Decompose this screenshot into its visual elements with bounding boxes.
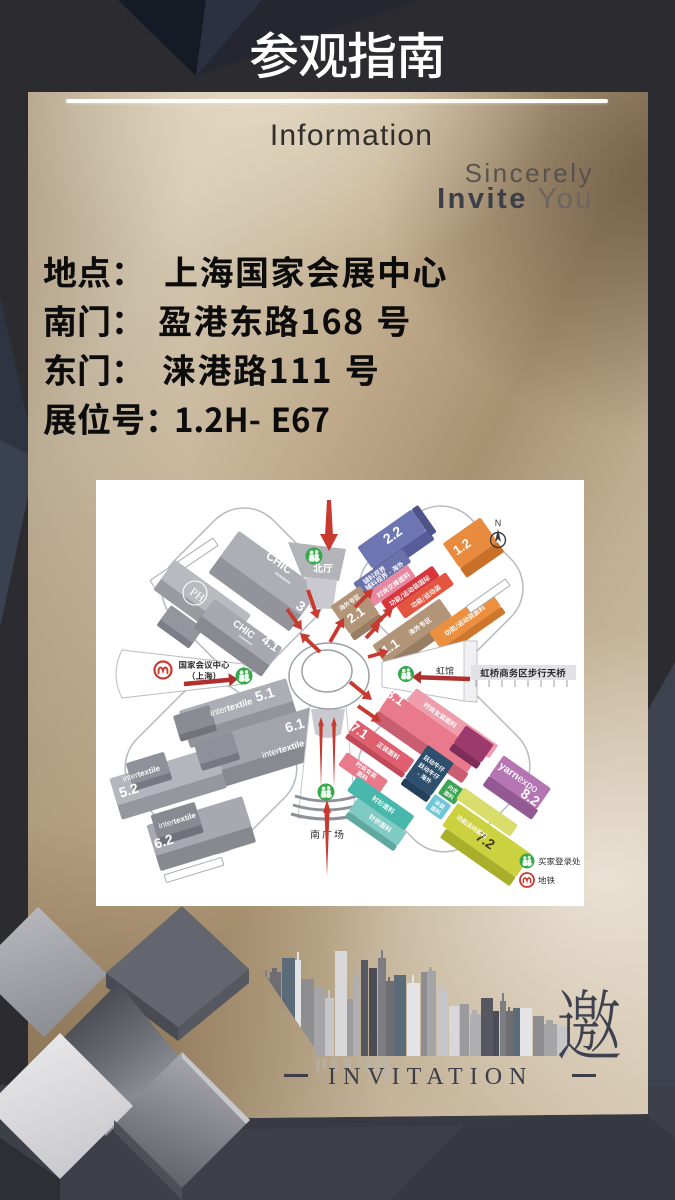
svg-text:N: N xyxy=(495,518,502,528)
